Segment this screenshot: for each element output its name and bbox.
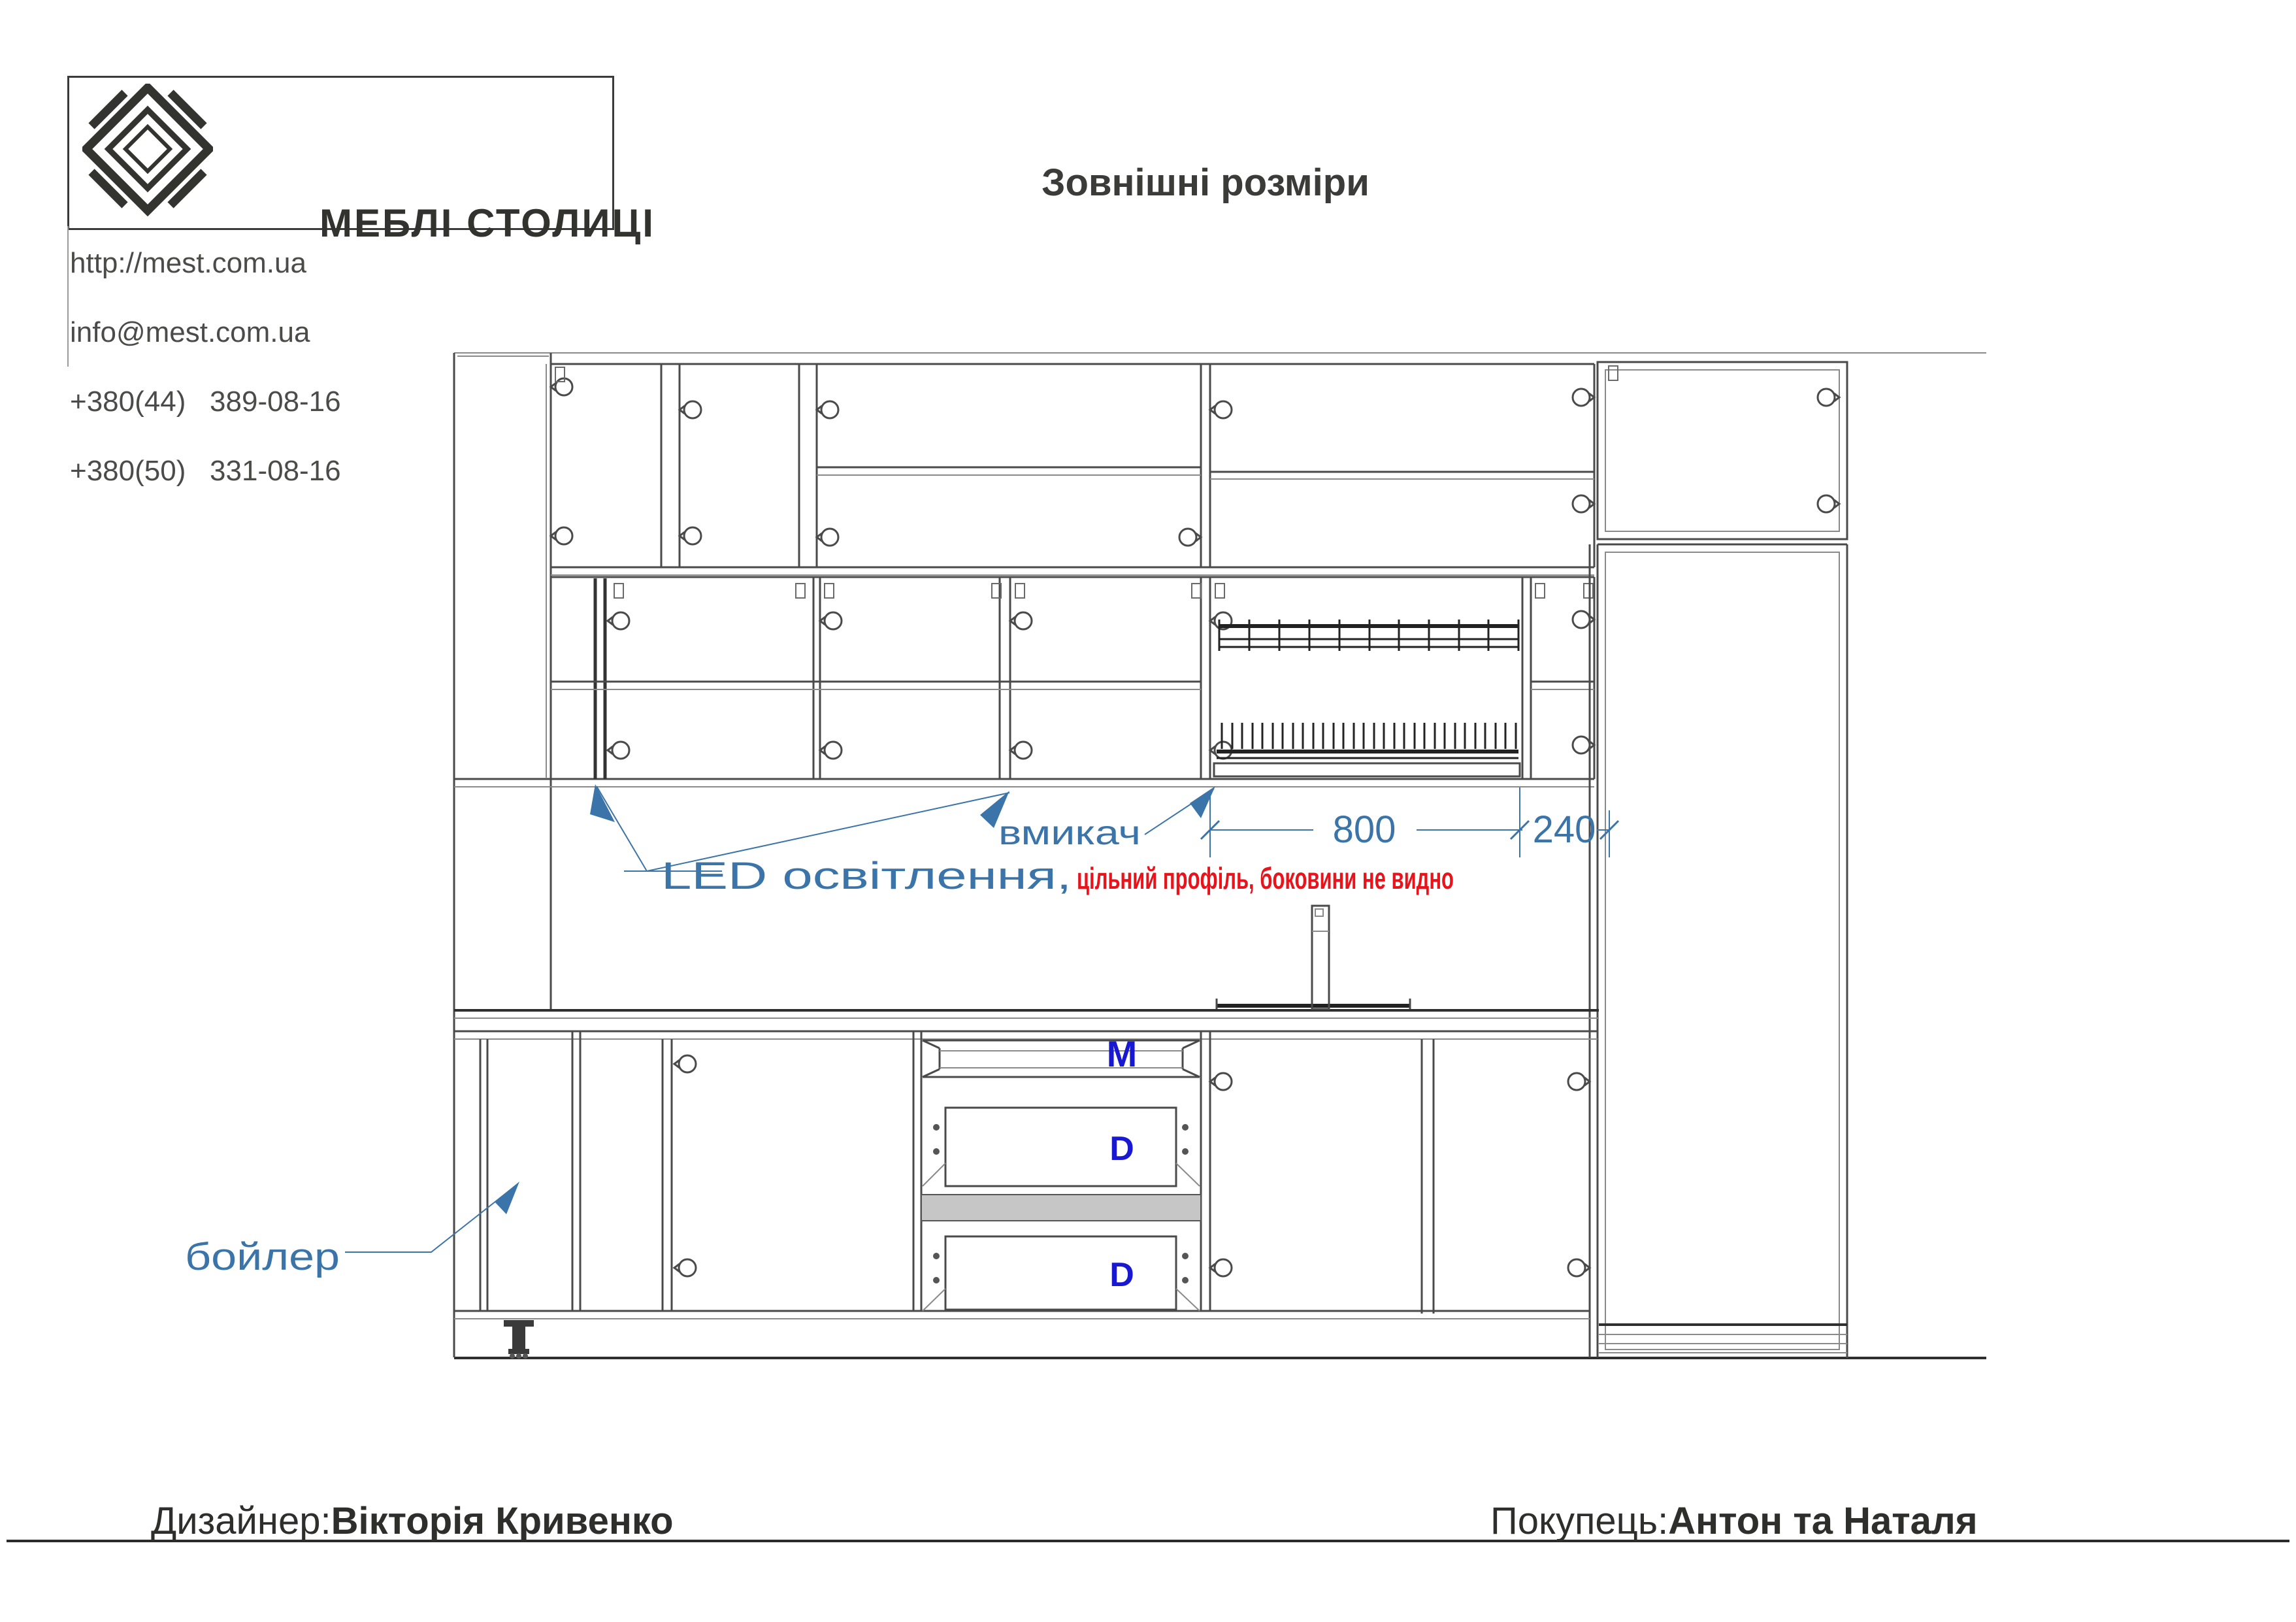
buyer-name: Антон та Наталя <box>1668 1500 1977 1542</box>
designer-line: Дизайнер:Вікторія Кривенко <box>151 1499 674 1543</box>
dimension-lines: 800 240 <box>1201 787 1618 857</box>
led-label: LED освітлення, <box>661 855 1072 897</box>
drawer-label-d1: D <box>1109 1130 1134 1168</box>
sink <box>1217 999 1410 1009</box>
upper-cabinets-row1 <box>551 364 1594 575</box>
switch-label: вмикач <box>998 814 1141 852</box>
upper-cabinets-row2 <box>454 577 1594 787</box>
dim-240-label: 240 <box>1533 808 1596 851</box>
dim-800-label: 800 <box>1333 808 1396 851</box>
drawer-stack <box>921 1040 1201 1311</box>
drawing-sheet: МЕБЛІ СТОЛИЦІ http://mest.com.ua info@me… <box>0 0 2296 1622</box>
cabinet-leg <box>504 1320 534 1359</box>
buyer-label: Покупець: <box>1490 1500 1668 1542</box>
countertop <box>454 1010 1599 1018</box>
red-note-label: цільний профіль, боковини не видно <box>1077 861 1454 895</box>
dish-drying-rack <box>1214 620 1520 776</box>
designer-name: Вікторія Кривенко <box>331 1500 674 1542</box>
boiler-label: бойлер <box>185 1236 340 1278</box>
faucet <box>1312 906 1329 1009</box>
drawer-label-d2: D <box>1109 1256 1134 1294</box>
drawer-label-m: M <box>1107 1033 1138 1074</box>
designer-label: Дизайнер: <box>151 1500 331 1542</box>
kitchen-elevation-drawing: 800 240 вмикач LED освітлення, цільний п… <box>0 0 2296 1622</box>
tall-cabinet-right <box>1590 544 1847 1358</box>
buyer-line: Покупець:Антон та Наталя <box>1490 1499 1978 1543</box>
upper-cabinet-right <box>1598 362 1847 539</box>
base-cabinets <box>454 1031 1598 1319</box>
